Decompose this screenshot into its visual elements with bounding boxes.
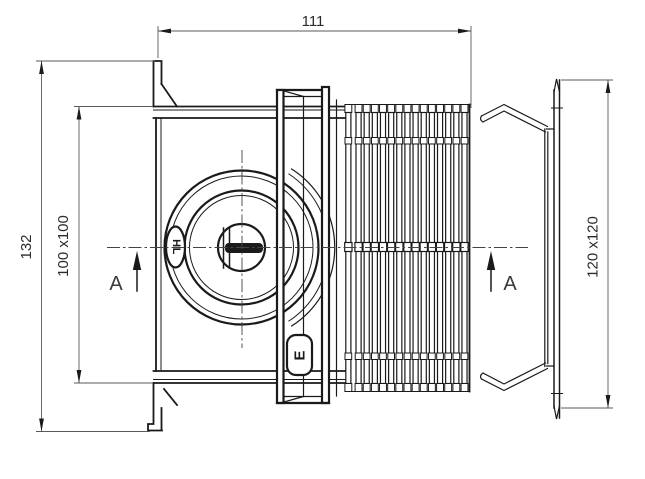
section-mark-left: A xyxy=(109,251,141,295)
dimension-length: 111 xyxy=(158,13,471,108)
dim-wall-arrow-top xyxy=(606,80,611,93)
ribbed-duct xyxy=(345,105,470,392)
section-arrow-right-head xyxy=(487,251,495,270)
wall-plate-break-marks xyxy=(552,108,563,394)
dim-length-value: 111 xyxy=(302,13,325,30)
spring-clip-bottom xyxy=(481,363,554,391)
section-arrow-left-head xyxy=(133,251,141,270)
section-mark-right: A xyxy=(487,251,518,295)
dim-length-arrow-left xyxy=(158,29,171,34)
dim-length-extensions xyxy=(158,26,471,108)
hub-slot xyxy=(225,243,263,253)
bottom-tab-brace xyxy=(164,389,177,405)
dimension-wall-flange: 120 x120 xyxy=(561,80,613,408)
bottom-tab xyxy=(148,383,162,431)
dim-wall-arrow-bottom xyxy=(606,395,611,408)
dim-wall-value: 120 x120 xyxy=(585,216,602,278)
dim-overall-arrow-bottom xyxy=(39,419,44,432)
wall-plate-assembly xyxy=(481,79,563,419)
section-label-left: A xyxy=(109,273,123,295)
latch-mark-label: E xyxy=(292,350,309,360)
collar-top-detail xyxy=(284,91,322,97)
top-tab-brace xyxy=(162,84,178,107)
spring-clip-leaf xyxy=(545,129,548,367)
dim-inner-value: 100 x100 xyxy=(55,215,72,277)
dimension-inner-flange: 100 x100 xyxy=(55,107,153,384)
collar: E xyxy=(277,87,337,403)
wall-plate-tips xyxy=(554,79,560,419)
fan-housing-drawing: HL E xyxy=(0,0,645,479)
dim-overall-arrow-top xyxy=(39,61,44,74)
brand-badge-label: HL xyxy=(170,239,182,255)
wall-plate xyxy=(554,80,560,418)
spring-clip-top xyxy=(481,105,554,133)
collar-right-bar xyxy=(322,87,329,403)
dim-overall-value: 132 xyxy=(18,234,35,259)
dim-inner-arrow-bottom xyxy=(77,370,82,383)
dim-inner-arrow-top xyxy=(77,107,82,120)
dimension-overall-height: 132 xyxy=(18,61,155,432)
collar-left-bar xyxy=(277,90,284,403)
dim-length-arrow-right xyxy=(458,29,471,34)
dim-inner-extensions xyxy=(74,107,153,384)
dim-overall-extensions xyxy=(36,61,155,432)
collar-bottom-detail xyxy=(284,397,322,403)
section-label-right: A xyxy=(503,273,517,295)
technical-drawing-canvas: HL E xyxy=(0,0,645,479)
